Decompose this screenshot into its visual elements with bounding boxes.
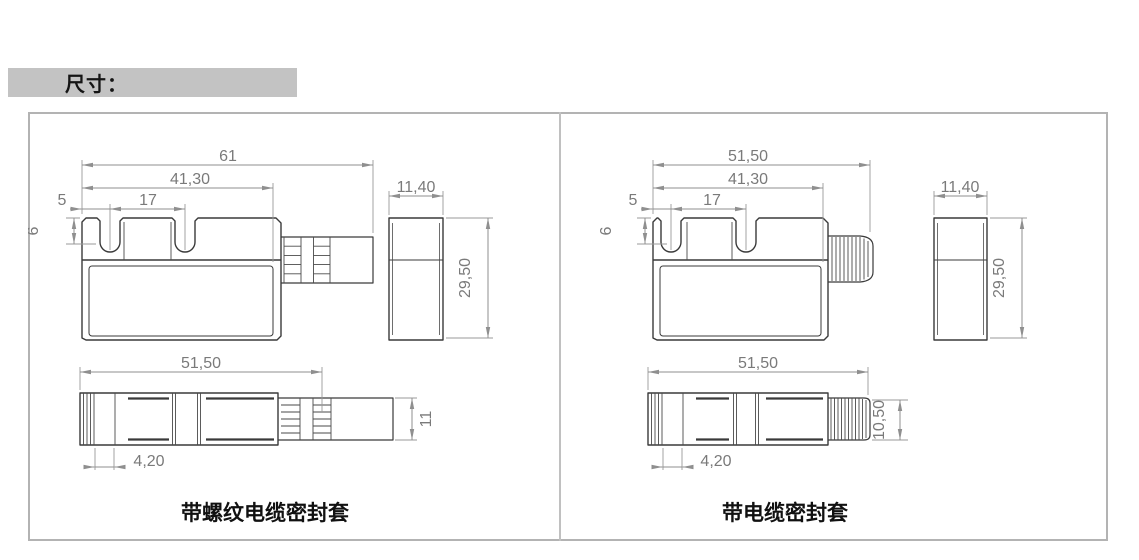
dim-total-length: 61 [219,148,237,165]
dim-inner-length: 41,30 [728,171,768,188]
dim-notch-spacing: 17 [703,192,721,209]
dim-side-width: 11,40 [941,179,980,196]
front-view [82,218,373,340]
top-view [648,393,870,445]
top-view [80,393,393,445]
front-view [653,218,873,340]
dimension-lines [637,160,1027,470]
dim-height: 29,50 [991,258,1008,298]
caption-threaded-gland: 带螺纹电缆密封套 [120,497,410,527]
dim-notch-depth: 6 [598,226,615,235]
dim-connector-height: 11 [418,411,435,428]
drawing-cable-gland: 51,50 41,30 17 5 6 11,40 29,50 51,50 4,2… [560,112,1108,541]
dim-height: 29,50 [457,258,474,298]
dim-inner-length: 41,30 [170,171,210,188]
dim-total-length: 51,50 [728,148,768,165]
drawing-threaded-gland: 61 41,30 17 5 6 11,40 29,50 51,50 4,20 1… [28,112,560,541]
dim-edge-offset: 5 [58,192,67,209]
section-header: 尺寸： [8,68,297,97]
side-view [389,218,443,340]
dim-notch-spacing: 17 [139,192,157,209]
page: 尺寸： [0,0,1139,560]
dim-notch-depth: 6 [28,226,42,235]
dim-top-length: 51,50 [738,355,778,372]
dim-edge-offset: 5 [629,192,638,209]
dim-side-width: 11,40 [397,179,436,196]
caption-cable-gland: 带电缆密封套 [640,497,930,527]
dim-gland-height: 10,50 [871,400,888,440]
side-view [934,218,987,340]
dim-top-length: 51,50 [181,355,221,372]
dim-slot-offset: 4,20 [700,453,731,470]
dim-slot-offset: 4,20 [133,453,164,470]
section-title: 尺寸： [8,68,128,97]
